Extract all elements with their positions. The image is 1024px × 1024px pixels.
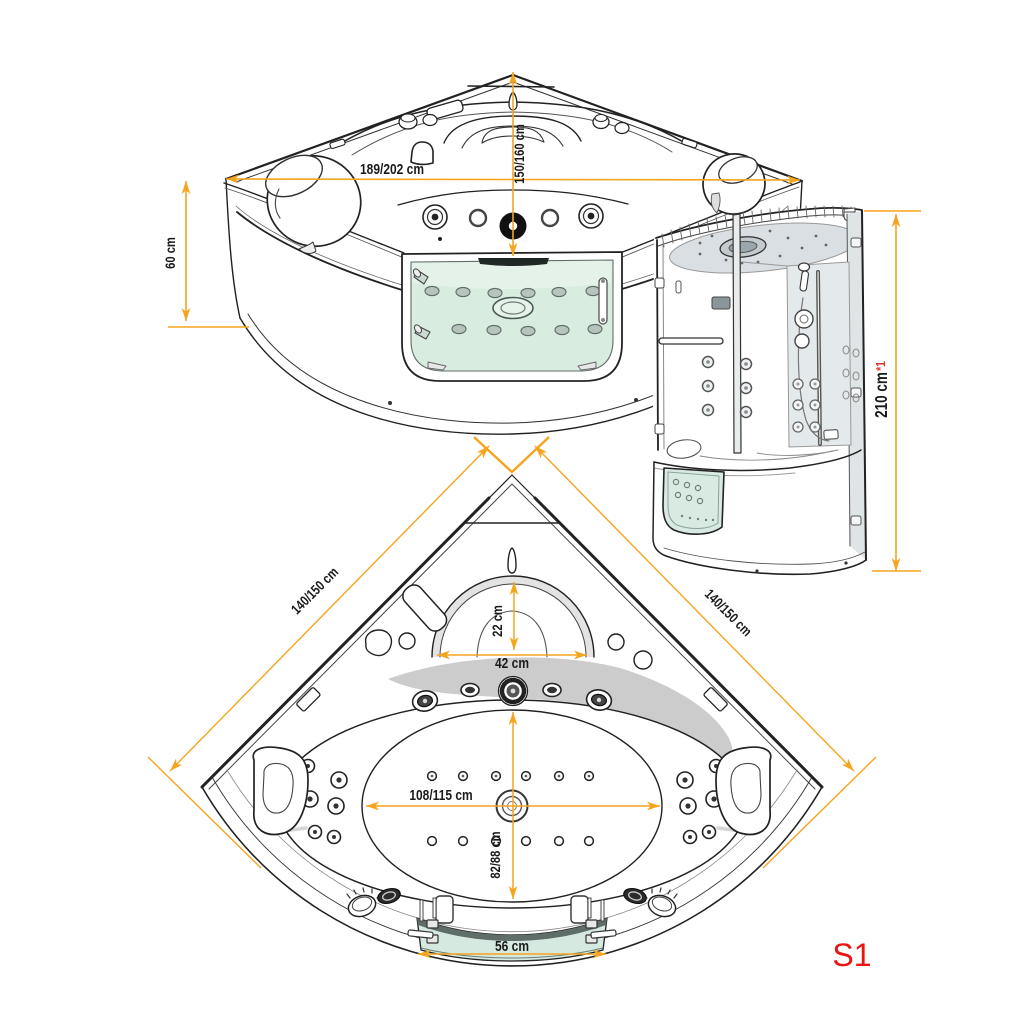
svg-text:108/115 cm: 108/115 cm	[409, 787, 472, 804]
svg-text:S1: S1	[832, 937, 871, 973]
svg-text:82/88 cm: 82/88 cm	[488, 831, 503, 878]
svg-text:150/160 cm: 150/160 cm	[512, 124, 527, 184]
svg-text:140/150 cm: 140/150 cm	[288, 564, 341, 617]
svg-text:189/202 cm: 189/202 cm	[360, 161, 424, 178]
svg-text:210 cm: 210 cm	[872, 372, 891, 418]
svg-text:56 cm: 56 cm	[495, 938, 529, 955]
svg-text:*1: *1	[874, 361, 888, 371]
svg-text:42 cm: 42 cm	[495, 655, 529, 672]
svg-text:140/150 cm: 140/150 cm	[702, 586, 755, 639]
svg-text:22 cm: 22 cm	[490, 605, 505, 637]
svg-text:60 cm: 60 cm	[163, 237, 178, 269]
